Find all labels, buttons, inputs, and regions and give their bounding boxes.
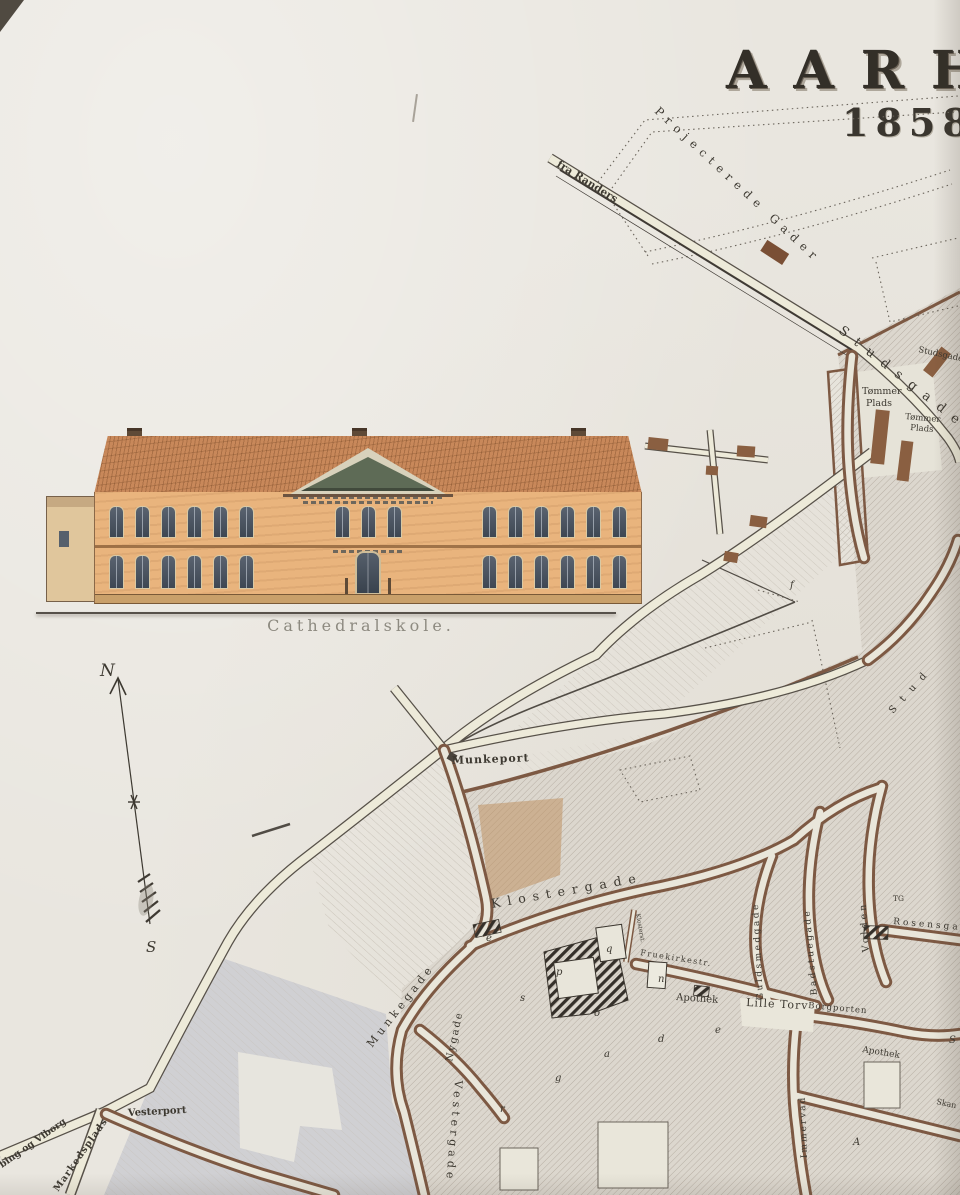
road-label-viborg: bing og Viborg (0, 1116, 69, 1170)
ref-letter: g (555, 1073, 561, 1084)
label-tommerplads-2b: Plads (910, 423, 934, 435)
ref-letter: a (604, 1049, 610, 1060)
ref-letter: o (594, 1008, 600, 1019)
gate-label-munkeport: Munkeport (452, 751, 530, 767)
ref-letter: s (520, 993, 525, 1004)
ref-letter: e (486, 933, 492, 944)
ref-letter: d (658, 1034, 664, 1045)
ref-letter: S (949, 1035, 956, 1046)
compass-south-label: S (146, 938, 156, 956)
north-arrow: N S (88, 652, 180, 964)
ref-letter: A (852, 1137, 860, 1148)
label-tommerplads-1b: Plads (866, 398, 892, 409)
label-tg-marker: TG (893, 894, 904, 903)
feather-smudge (136, 883, 156, 917)
city-map: fra Randers Projecterede Gader Studsgade… (0, 0, 960, 1195)
ref-letter: e (715, 1025, 721, 1036)
ref-letter: p (556, 967, 563, 978)
compass-north-label: N (99, 661, 116, 681)
map-sheet: AARH 1858. (0, 0, 960, 1195)
ref-letter: n (658, 974, 664, 985)
label-tommerplads-1: Tømmer (862, 386, 902, 397)
ref-letter: q (606, 944, 612, 955)
